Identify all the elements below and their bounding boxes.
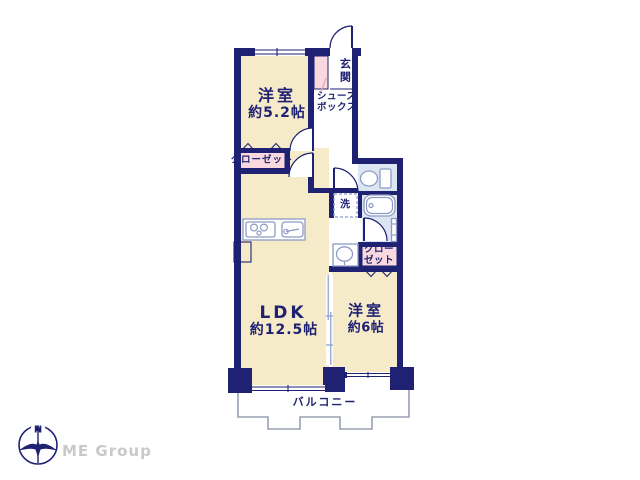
bathtub-symbol	[364, 195, 395, 216]
shoe-box-label: シューズ ボックス	[317, 92, 357, 114]
bedroom-west-size: 約5.2帖	[248, 105, 306, 121]
bedroom-east-name: 洋室	[348, 302, 384, 319]
floor-plan-canvas: 洋室 約5.2帖 LDK 約12.5帖 洋室 約6帖 玄関 シューズ ボックス …	[0, 0, 640, 480]
pillar-south-middle	[323, 367, 345, 392]
bedroom-west-name: 洋室	[258, 87, 296, 105]
compass-north-label: N	[34, 424, 42, 436]
closet-east-label: クロー ゼット	[364, 245, 394, 267]
laundry-label: 洗	[340, 199, 350, 211]
entrance-label: 玄関	[338, 58, 351, 84]
ldk-floor	[241, 148, 329, 385]
closet-west-label: クローゼット	[230, 156, 293, 167]
ldk-size: 約12.5帖	[250, 322, 319, 338]
balcony-label: バルコニー	[293, 397, 358, 410]
sliding-door-ldk-bedroom	[326, 275, 333, 365]
ldk-name: LDK	[259, 304, 306, 324]
brand-logo-text: ME Group	[62, 442, 152, 460]
window-bedroom-east-south	[347, 372, 390, 378]
kitchen-counter-symbol	[243, 219, 305, 240]
window-north	[255, 48, 305, 56]
pillar-southwest	[228, 368, 252, 393]
entrance-door	[330, 26, 352, 48]
bedroom-east-size: 約6帖	[348, 322, 385, 337]
washbasin-symbol	[333, 244, 358, 266]
bath-counter-strip	[392, 219, 397, 242]
shoe-box	[314, 56, 328, 89]
pillar-southeast	[390, 367, 414, 390]
window-ldk-south	[252, 385, 325, 392]
